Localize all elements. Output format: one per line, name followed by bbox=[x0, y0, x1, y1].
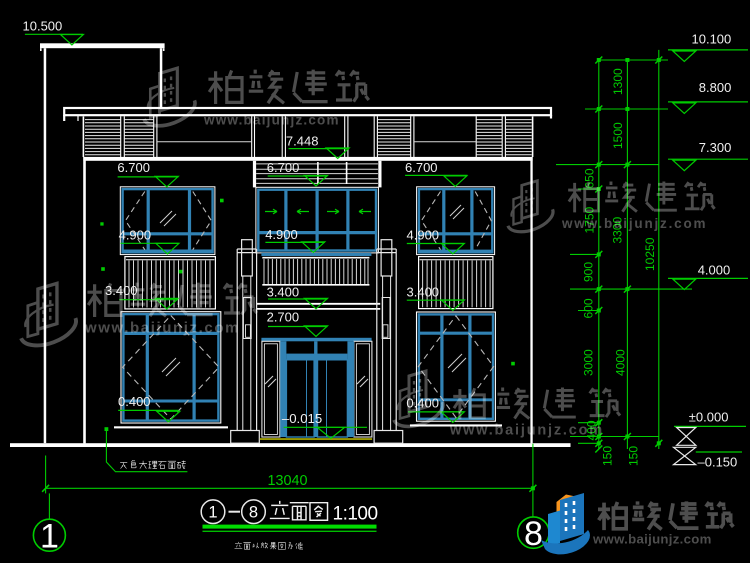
svg-text:±0.000: ±0.000 bbox=[689, 410, 729, 425]
svg-text:www.baijunjz.com: www.baijunjz.com bbox=[449, 423, 604, 439]
svg-text:7.448: 7.448 bbox=[286, 134, 319, 149]
svg-text:www.baijunjz.com: www.baijunjz.com bbox=[84, 320, 240, 337]
svg-text:650: 650 bbox=[583, 168, 597, 188]
svg-text:6.700: 6.700 bbox=[405, 160, 438, 175]
svg-text:8.800: 8.800 bbox=[699, 80, 732, 95]
svg-text:10250: 10250 bbox=[643, 237, 657, 271]
svg-text:6.700: 6.700 bbox=[117, 160, 150, 175]
svg-text:0.400: 0.400 bbox=[118, 394, 151, 409]
svg-text:www.baijunjz.com: www.baijunjz.com bbox=[592, 532, 712, 547]
svg-text:1: 1 bbox=[208, 504, 217, 522]
svg-text:1500: 1500 bbox=[611, 122, 625, 149]
svg-text:4000: 4000 bbox=[614, 349, 628, 376]
svg-text:600: 600 bbox=[582, 298, 596, 318]
svg-text:10.500: 10.500 bbox=[23, 19, 63, 34]
svg-text:2.700: 2.700 bbox=[267, 310, 300, 325]
svg-text:3.400: 3.400 bbox=[267, 285, 300, 300]
svg-text:6.700: 6.700 bbox=[267, 160, 300, 175]
svg-text:150: 150 bbox=[627, 446, 641, 466]
svg-text:4.900: 4.900 bbox=[407, 227, 440, 242]
svg-text:1: 1 bbox=[40, 518, 59, 556]
svg-text:3000: 3000 bbox=[582, 349, 596, 376]
svg-text:8: 8 bbox=[524, 515, 543, 553]
svg-text:1300: 1300 bbox=[611, 68, 625, 95]
svg-text:900: 900 bbox=[582, 262, 596, 282]
svg-text:10.100: 10.100 bbox=[692, 32, 732, 47]
svg-text:–0.150: –0.150 bbox=[698, 454, 738, 469]
svg-text:4.900: 4.900 bbox=[265, 227, 298, 242]
svg-text:3.400: 3.400 bbox=[407, 285, 440, 300]
svg-text:7.300: 7.300 bbox=[699, 140, 732, 155]
svg-text:www.baijunjz.com: www.baijunjz.com bbox=[561, 216, 707, 231]
svg-text:4.000: 4.000 bbox=[698, 262, 731, 277]
svg-text:1:100: 1:100 bbox=[333, 504, 378, 525]
svg-text:8: 8 bbox=[249, 504, 258, 522]
svg-text:150: 150 bbox=[601, 446, 615, 466]
svg-text:13040: 13040 bbox=[268, 473, 308, 489]
svg-text:www.baijunjz.com: www.baijunjz.com bbox=[203, 113, 340, 128]
svg-text:4.900: 4.900 bbox=[119, 227, 152, 242]
svg-text:–0.015: –0.015 bbox=[282, 411, 322, 426]
